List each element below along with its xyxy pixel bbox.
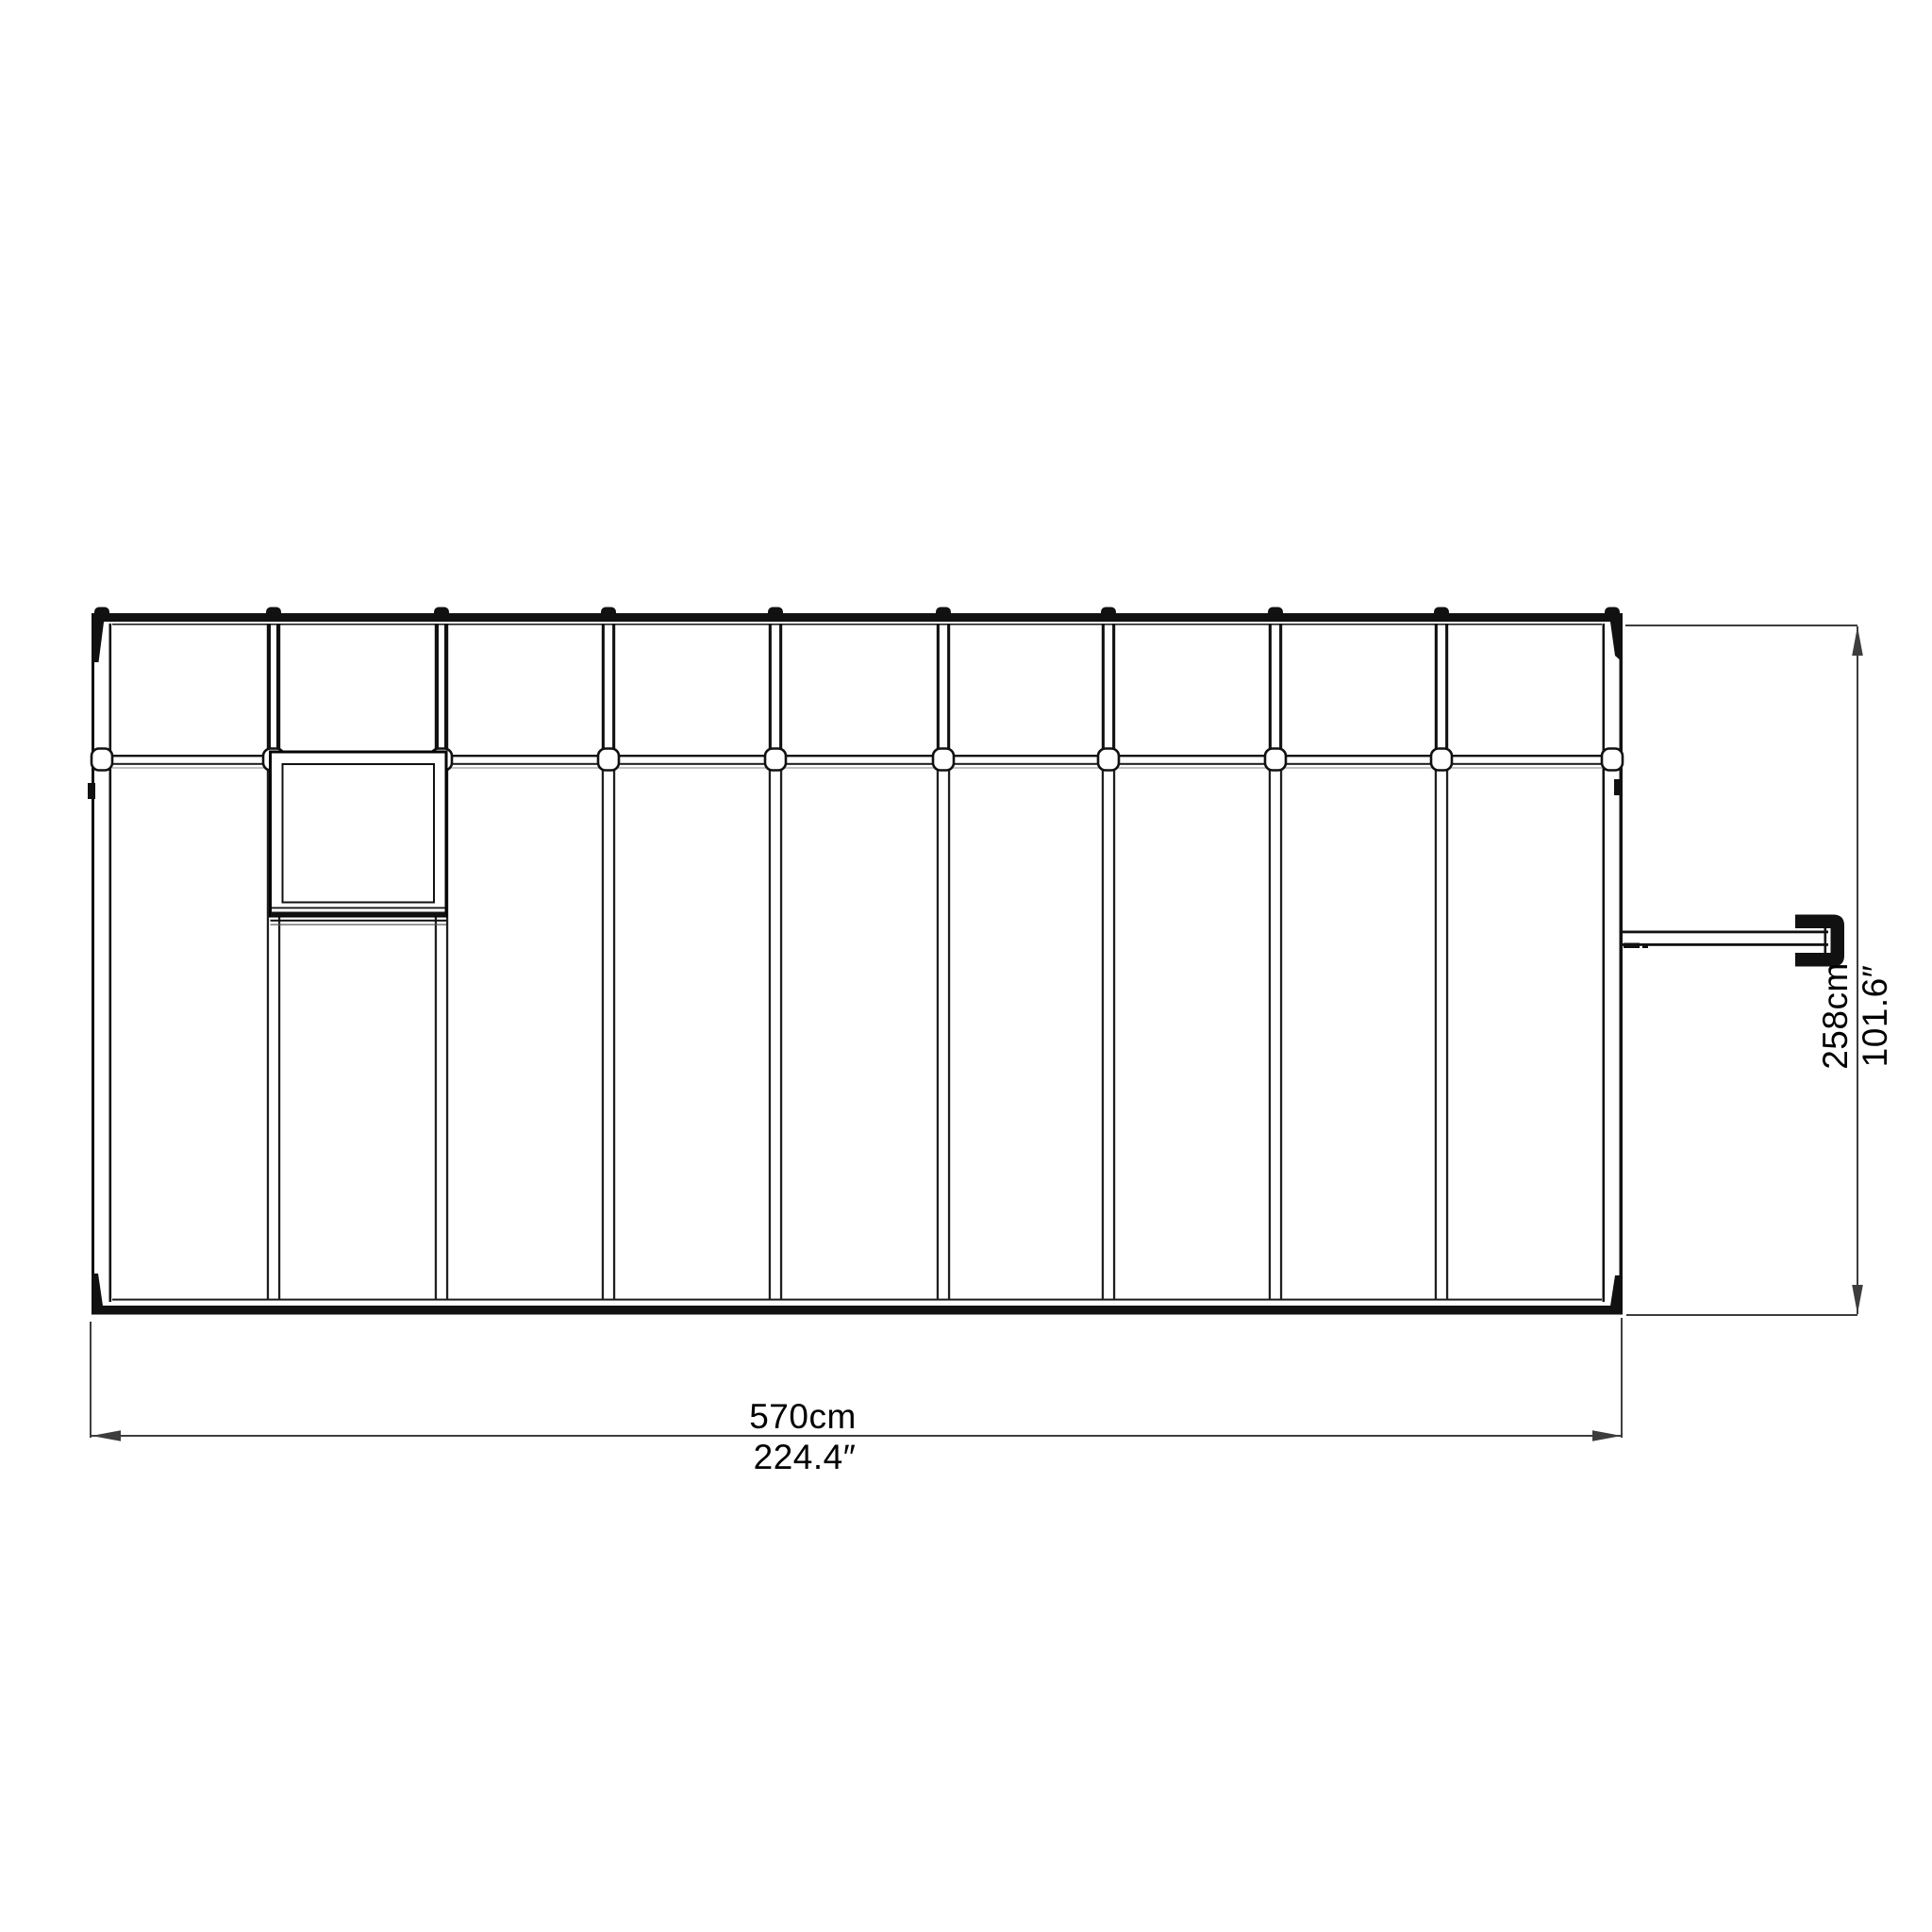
mullion-band-line (276, 624, 280, 755)
rail-joint-node (92, 749, 112, 771)
right-post-inner-line (1603, 624, 1606, 1302)
mullion-band-line (602, 624, 605, 755)
mullion-lower-line (1113, 766, 1115, 1299)
mullion-band-line (1435, 624, 1438, 755)
mullion-band-line (1102, 624, 1105, 755)
mullion-lower-line (780, 766, 782, 1299)
mullion-band-line (267, 624, 271, 755)
left-post-hinge-mark (88, 783, 95, 799)
window-bottom-member (271, 912, 446, 917)
mullion-lower-line (948, 766, 950, 1299)
handle-mount-mark (1624, 943, 1640, 949)
window-lower-separator-shadow (271, 924, 447, 925)
mullion-lower-line (613, 766, 615, 1299)
handle-bar-top-line (1623, 931, 1828, 934)
cap-joint-bump (936, 608, 951, 619)
right-post-outer-line (1620, 615, 1624, 1314)
mullion-band-line (435, 624, 439, 755)
left-post-outer-line (92, 615, 94, 1314)
window-bottom-line (272, 908, 445, 909)
cap-joint-bump (768, 608, 783, 619)
mullion-band-line (947, 624, 950, 755)
mullion-band-line (779, 624, 782, 755)
rail-joint-node (1431, 749, 1452, 771)
cap-joint-bump (434, 608, 449, 619)
rail-joint-node (598, 749, 619, 771)
right-post-latch-mark (1614, 779, 1621, 795)
handle-bar-bottom-line (1623, 943, 1828, 946)
mullion-lower-line (1435, 766, 1437, 1299)
handle-mount-mark-small (1642, 944, 1648, 948)
cap-joint-bump (266, 608, 281, 619)
rail-joint-node (933, 749, 954, 771)
height-label-metric: 258cm (1816, 962, 1855, 1070)
mullion-lower-line (267, 766, 269, 1299)
mullion-lower-line (602, 766, 604, 1299)
handle-bolt-tick-1 (1824, 926, 1827, 956)
mullion-lower-line (937, 766, 939, 1299)
rail-joint-node (1098, 749, 1119, 771)
louver-window (271, 752, 447, 925)
mullion-band-line (612, 624, 615, 755)
greenhouse-side-elevation: 570cm 224.4″ 258cm 101.6″ (0, 0, 1932, 1932)
mullion-band-line (1445, 624, 1448, 755)
cap-joint-bump (1605, 608, 1620, 619)
cap-joint-bump (1268, 608, 1283, 619)
mullion-lower-line (1102, 766, 1104, 1299)
left-post-inner-line (109, 624, 112, 1302)
mullion-lower-line (1280, 766, 1282, 1299)
mullion-band-line (1269, 624, 1272, 755)
diagram-canvas: 570cm 224.4″ 258cm 101.6″ (0, 0, 1932, 1932)
top-cap-underline (112, 624, 1602, 625)
window-lower-separator (271, 920, 447, 922)
height-label-imperial: 101.6″ (1856, 965, 1894, 1068)
top-cap (92, 613, 1623, 622)
mullion-band-line (769, 624, 772, 755)
cap-joint-bump (601, 608, 616, 619)
width-label-imperial: 224.4″ (754, 1438, 857, 1476)
mullion-band-line (1112, 624, 1115, 755)
rail-joint-node (765, 749, 786, 771)
mullion-band-line (937, 624, 940, 755)
mullion-band-line (444, 624, 448, 755)
rail-joint-node (1602, 749, 1623, 771)
cap-joint-bump (94, 608, 109, 619)
handle-bolt-tick-2 (1833, 926, 1836, 956)
mullion-lower-line (769, 766, 771, 1299)
bottom-sill (92, 1306, 1623, 1315)
sill-inner-line (112, 1299, 1602, 1301)
width-label-metric: 570cm (749, 1397, 857, 1436)
window-outer-frame (271, 752, 447, 916)
cap-joint-bump (1434, 608, 1449, 619)
cap-joint-bump (1101, 608, 1116, 619)
mullion-lower-line (1446, 766, 1448, 1299)
mullion-lower-line (1269, 766, 1271, 1299)
rail-joint-node (1265, 749, 1286, 771)
background (0, 0, 1932, 1932)
mullion-band-line (1279, 624, 1282, 755)
